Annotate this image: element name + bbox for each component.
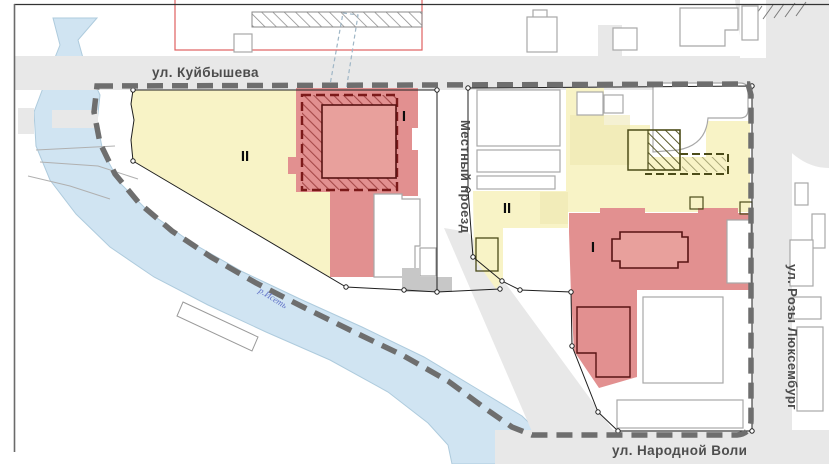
street-label-narodnoy-voli: ул. Народной Воли [612, 443, 747, 458]
zone-label-right-yellow: II [503, 200, 511, 217]
zone-yellow-dark-patch-2 [540, 192, 568, 224]
street-label-kuybysheva: ул. Куйбышева [152, 65, 259, 80]
olive-building-hatch [648, 130, 680, 170]
building-left-se [374, 194, 420, 277]
street-label-rozy-luxemburg: ул. Розы Люксембург [785, 264, 800, 410]
zone-yellow-dark-patch-1 [570, 115, 630, 165]
hatched-strip-north [252, 12, 422, 27]
building-left-gray [402, 268, 452, 292]
road-patch-2 [52, 110, 98, 128]
zone-label-left-yellow: II [241, 148, 249, 165]
road-patch-1 [18, 108, 34, 134]
site-plan-map: ул. Куйбышева Местный проезд ул. Народно… [0, 0, 829, 464]
zone-label-right-red: I [591, 239, 595, 256]
red-building-left [322, 105, 396, 178]
olive-extension-hatch [682, 157, 726, 172]
building-left-steps [420, 248, 436, 276]
red-building-long [612, 232, 688, 268]
street-label-mestny-proezd: Местный проезд [458, 120, 473, 234]
map-canvas: ул. Куйбышева Местный проезд ул. Народно… [0, 0, 829, 464]
zone-label-left-red: I [402, 108, 406, 125]
